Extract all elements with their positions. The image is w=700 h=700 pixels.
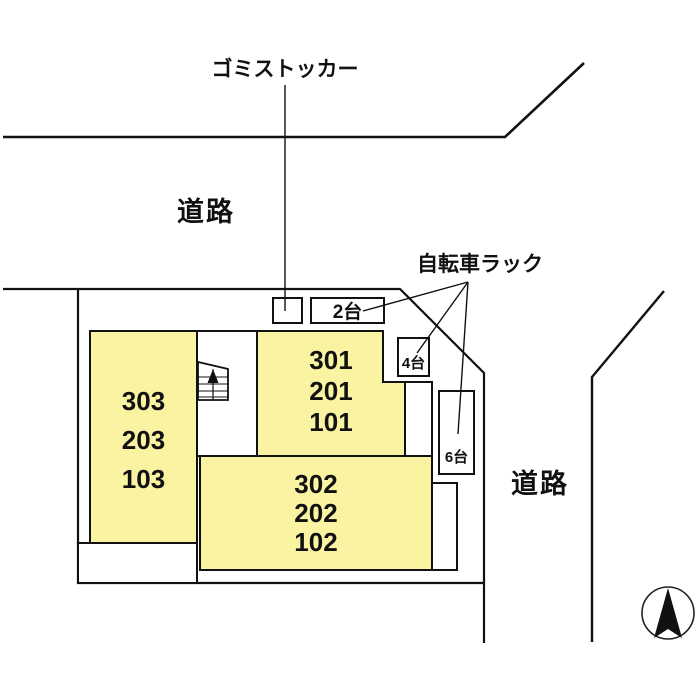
site-plan: ゴミストッカー 道路 自転車ラック 道路 2台 4台 6台 303 203 10…: [0, 0, 700, 700]
garbage-stocker-box: [272, 297, 303, 324]
bicycle-rack-label: 自転車ラック: [417, 248, 543, 278]
unit-numbers-northeast: 301 201 101: [257, 345, 405, 438]
unit-number: 101: [257, 407, 405, 438]
building-porch-area: [78, 543, 197, 583]
unit-number: 102: [200, 528, 432, 557]
bike-rack-2-box: 2台: [310, 297, 385, 324]
unit-number: 303: [90, 382, 197, 421]
road-line-right: [592, 291, 664, 642]
unit-number: 302: [200, 470, 432, 499]
unit-numbers-south: 302 202 102: [200, 470, 432, 557]
unit-number: 202: [200, 499, 432, 528]
unit-number: 301: [257, 345, 405, 376]
unit-number: 203: [90, 421, 197, 460]
unit-number: 103: [90, 460, 197, 499]
building-corridor: [405, 382, 432, 456]
garbage-storage-label: ゴミストッカー: [200, 53, 370, 83]
road-label-top: 道路: [177, 190, 235, 229]
unit-number: 201: [257, 376, 405, 407]
north-arrow-icon: [642, 587, 694, 639]
building-right-wing: [432, 483, 457, 570]
unit-numbers-west: 303 203 103: [90, 382, 197, 499]
road-label-right: 道路: [511, 462, 569, 501]
stairs-up-icon: [198, 362, 228, 400]
bike-rack-6-box: 6台: [438, 390, 475, 475]
